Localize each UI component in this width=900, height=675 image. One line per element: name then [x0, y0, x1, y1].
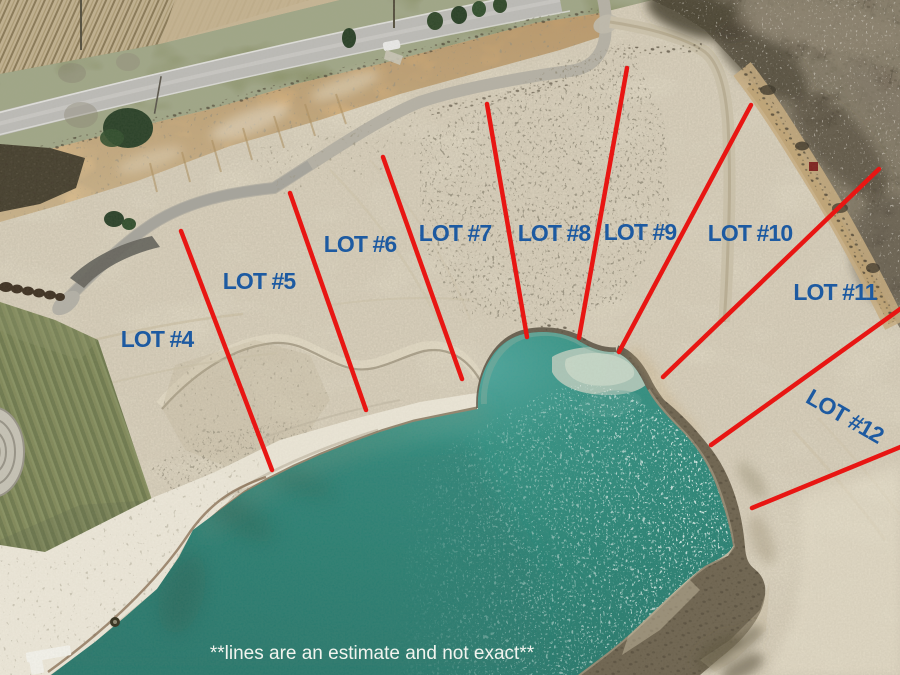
svg-text:LOT #7: LOT #7 — [419, 220, 492, 246]
svg-text:LOT #5: LOT #5 — [223, 268, 297, 294]
svg-text:LOT #9: LOT #9 — [604, 219, 677, 245]
svg-text:LOT #10: LOT #10 — [708, 220, 793, 246]
svg-text:LOT #4: LOT #4 — [121, 326, 195, 352]
svg-text:LOT #11: LOT #11 — [793, 279, 877, 305]
svg-text:LOT #6: LOT #6 — [324, 231, 397, 257]
svg-text:LOT #8: LOT #8 — [518, 220, 592, 246]
svg-text:**lines are an estimate and no: **lines are an estimate and not exact** — [210, 643, 535, 664]
